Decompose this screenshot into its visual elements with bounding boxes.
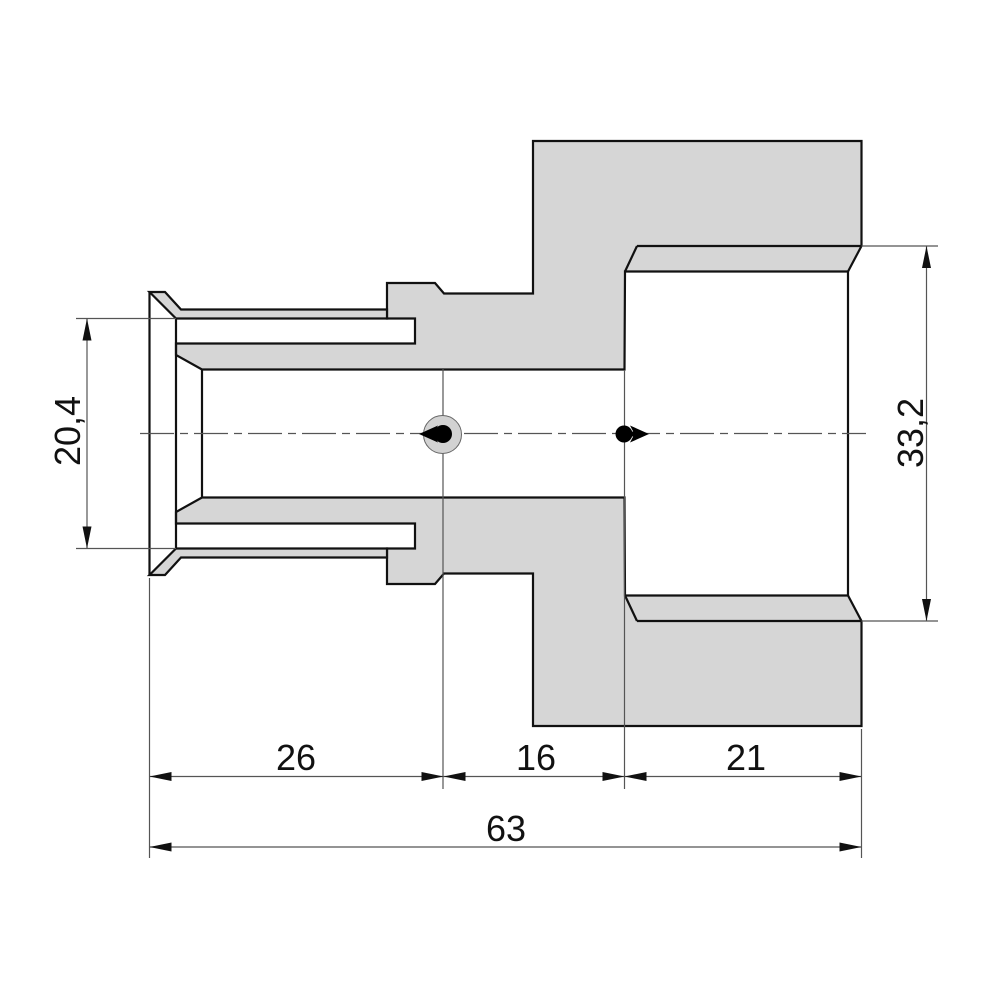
dim-label-sleeve-length: 26 [276,737,316,778]
flow-direction-marker-right [616,426,650,443]
arrow-26-left [150,772,172,781]
dim-label-sleeve-inner-diameter: 20,4 [47,396,88,466]
arrow-26-right [422,772,444,781]
dim-label-middle-length: 16 [516,737,556,778]
dim-label-thread-length: 21 [726,737,766,778]
arrow-20-4-up [83,319,92,341]
dim-label-thread-diameter: 33,2 [890,398,931,468]
body-section-top-half [176,141,862,370]
arrow-16-left [444,772,466,781]
body-section-bottom-half [176,498,862,727]
arrow-16-right [603,772,625,781]
arrow-20-4-down [83,527,92,549]
sleeve-section-top-half [150,292,388,319]
arrow-63-right [840,843,862,852]
arrow-21-right [840,772,862,781]
technical-drawing-canvas: 20,4 33,2 26 16 21 63 [0,0,1000,1000]
arrow-63-left [150,843,172,852]
arrow-33-2-up [922,246,931,268]
sleeve-section-bottom-half [150,549,388,576]
dim-label-overall-length: 63 [486,808,526,849]
flow-direction-marker-left [419,416,462,454]
arrow-21-left [625,772,647,781]
fitting-section-drawing: 20,4 33,2 26 16 21 63 [0,0,1000,1000]
arrow-33-2-down [922,599,931,621]
